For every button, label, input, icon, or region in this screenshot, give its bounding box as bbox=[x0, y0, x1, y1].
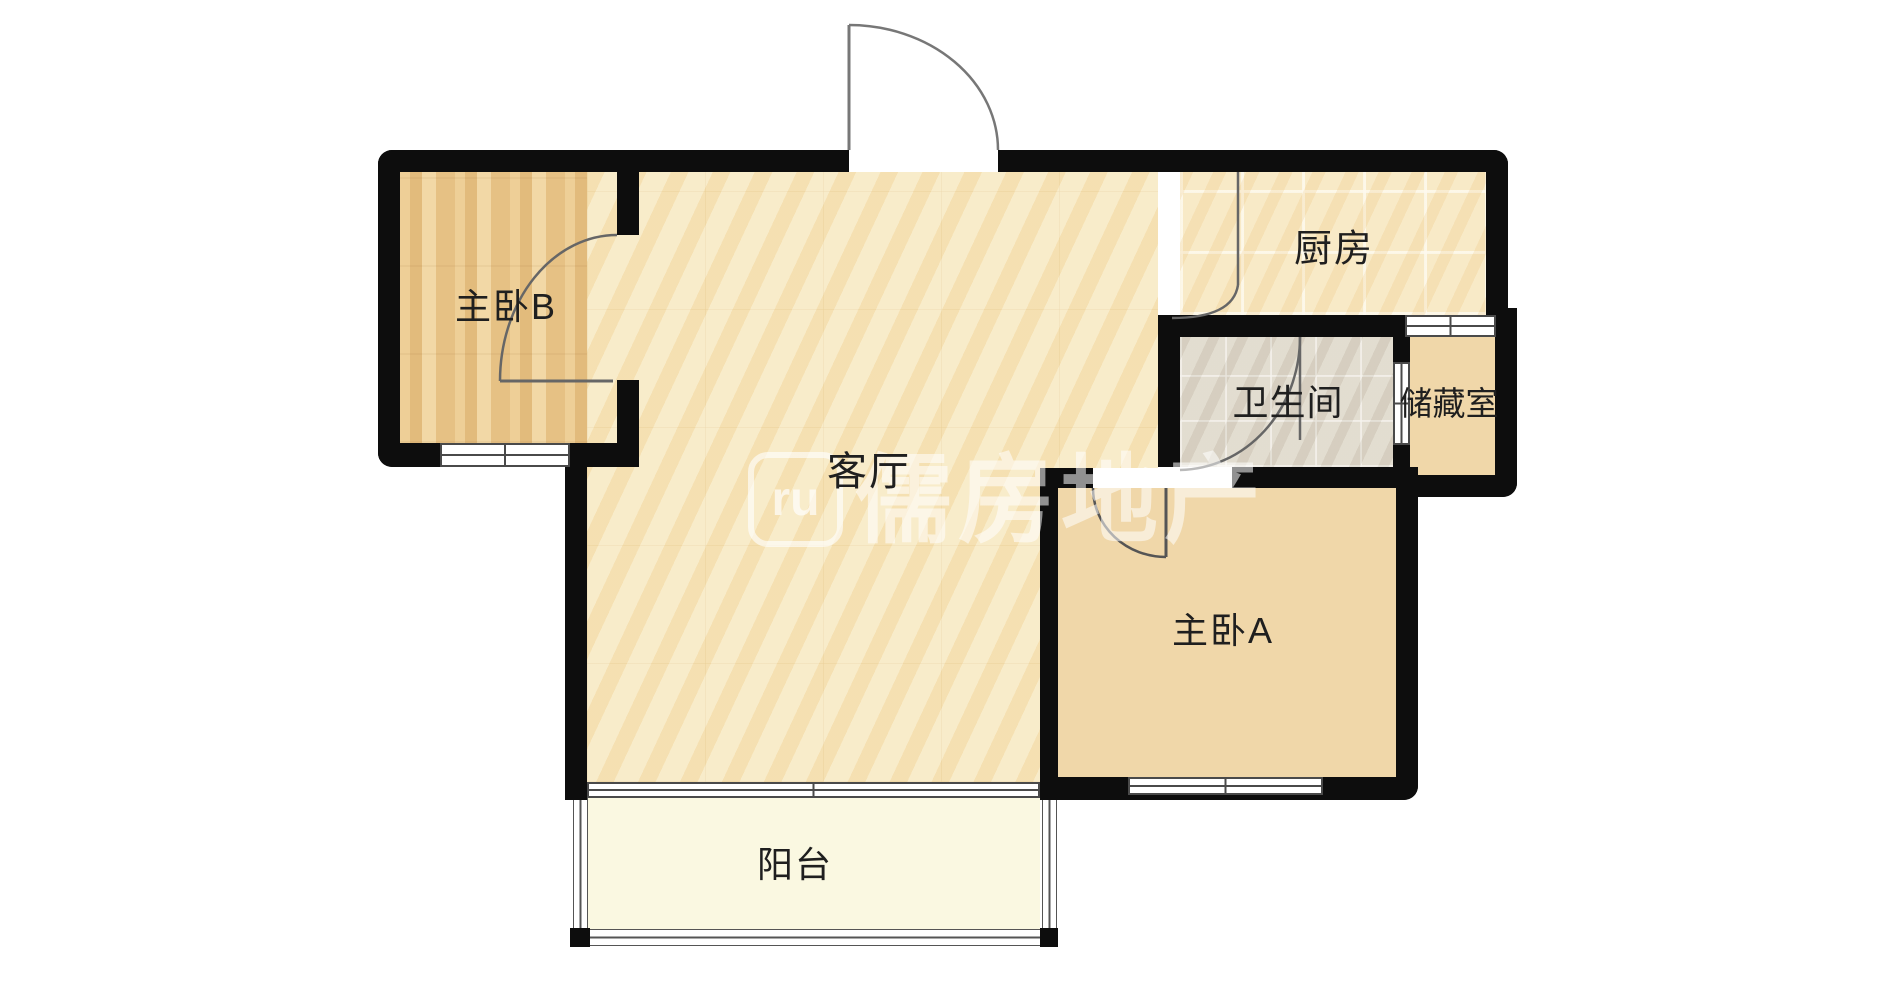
room-label-living-room: 客厅 bbox=[827, 439, 911, 497]
wall-bedroom-b-right-upper bbox=[617, 150, 639, 235]
room-label-bedroom-b: 主卧B bbox=[455, 278, 557, 330]
wall-bedroom-a-left bbox=[1040, 468, 1058, 800]
wall-kitchen-right bbox=[1486, 150, 1508, 330]
bedroom-b-window bbox=[440, 443, 570, 467]
balcony-corner-right bbox=[1040, 928, 1058, 947]
floor-plan: ru 儒房地产 主卧B 客厅 厨房 卫生间 储藏室 主卧A 阳台 bbox=[0, 0, 1900, 1000]
kitchen-doorway bbox=[1158, 172, 1180, 318]
wall-bathroom-left bbox=[1158, 318, 1180, 467]
wall-bedroom-b-left bbox=[378, 150, 400, 467]
wall-bathroom-bottom bbox=[1232, 467, 1418, 488]
wall-top-left bbox=[378, 150, 849, 172]
bedroom-a-window bbox=[1128, 777, 1323, 795]
room-label-storage: 储藏室 bbox=[1400, 377, 1499, 425]
balcony-railing-left bbox=[573, 798, 588, 947]
room-label-bathroom: 卫生间 bbox=[1232, 374, 1343, 426]
room-label-kitchen: 厨房 bbox=[1294, 218, 1374, 273]
balcony-corner-left bbox=[570, 928, 590, 947]
wall-bedroom-a-right bbox=[1396, 480, 1418, 800]
balcony-railing-bottom bbox=[573, 929, 1042, 946]
balcony-railing-right bbox=[1042, 798, 1057, 946]
room-label-balcony: 阳台 bbox=[757, 836, 833, 888]
room-label-bedroom-a: 主卧A bbox=[1172, 602, 1274, 654]
wall-top-right bbox=[998, 150, 1508, 172]
living-balcony-window bbox=[587, 782, 1040, 798]
wall-bedroom-b-right-lower bbox=[617, 380, 639, 467]
wall-living-left bbox=[565, 467, 587, 800]
wall-kitchen-bath-divider bbox=[1158, 315, 1405, 337]
kitchen-storage-window bbox=[1405, 315, 1496, 337]
entry-door-arc bbox=[849, 25, 998, 150]
wall-storage-bottom bbox=[1410, 475, 1517, 497]
